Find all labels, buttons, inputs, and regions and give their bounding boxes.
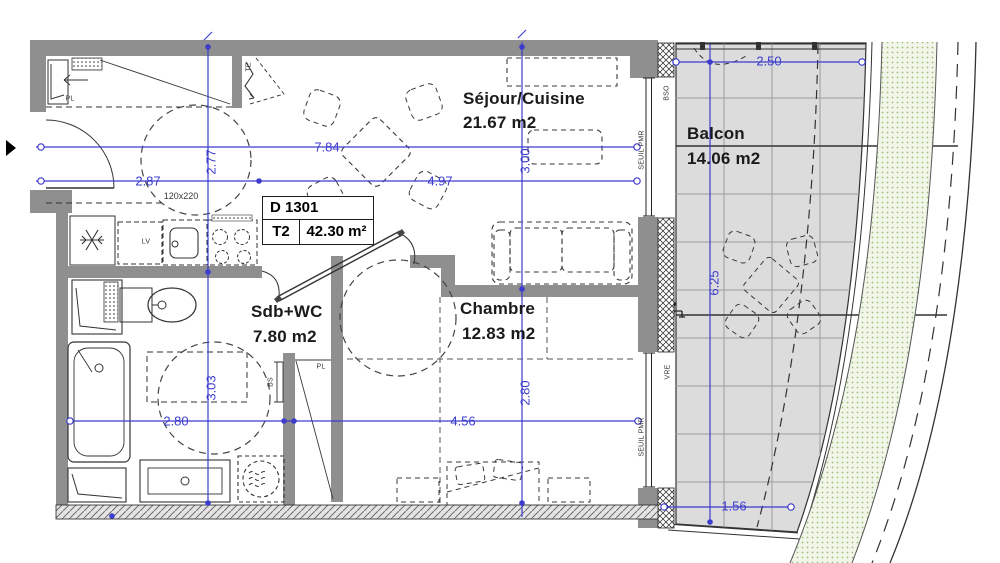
dim-sdb-width: 2.80 bbox=[163, 414, 188, 429]
basin-cabinet bbox=[120, 288, 152, 322]
sofa bbox=[492, 222, 632, 284]
dim-sdb-depth: 3.03 bbox=[204, 375, 219, 400]
dining-chair bbox=[301, 87, 342, 128]
seuil-pmr-label-top: SEUIL PMR bbox=[639, 130, 646, 169]
floor-plan: Séjour/Cuisine 21.67 m2 Balcon 14.06 m2 … bbox=[0, 0, 1000, 563]
unit-id: D 1301 bbox=[263, 197, 373, 220]
room-area-chambre: 12.83 m2 bbox=[462, 324, 535, 344]
bed bbox=[397, 459, 590, 505]
room-label-sdb: Sdb+WC bbox=[251, 302, 323, 322]
room-label-balcon: Balcon bbox=[687, 124, 745, 144]
seuil-pmr-label-bottom: SEUIL PMR bbox=[639, 417, 646, 456]
dim-sejour-total-width: 7.84 bbox=[314, 140, 339, 155]
sink-tap bbox=[172, 241, 178, 247]
wall-closet-right bbox=[331, 256, 343, 502]
closet-label-chambre: PL bbox=[317, 364, 326, 371]
entry-marker-triangle bbox=[6, 140, 16, 156]
dim-sejour-depth: 3.00 bbox=[518, 148, 533, 173]
room-area-sdb: 7.80 m2 bbox=[253, 327, 317, 347]
unit-type: T2 bbox=[263, 220, 300, 244]
nightstand bbox=[397, 478, 439, 502]
insulation-blocks bbox=[658, 43, 674, 528]
te-door-dashed bbox=[250, 58, 284, 104]
dim-balcon-end-width: 1.56 bbox=[721, 499, 746, 514]
dining-chair bbox=[403, 81, 444, 122]
shelf-tray bbox=[68, 468, 126, 502]
sink bbox=[170, 228, 198, 258]
dim-entry-depth: 2.77 bbox=[204, 149, 219, 174]
room-area-balcon: 14.06 m2 bbox=[687, 149, 760, 169]
closet-label-entry: PL bbox=[66, 96, 75, 103]
dining-table bbox=[339, 115, 413, 189]
wall-pier-mid bbox=[638, 217, 658, 352]
dim-entry-width: 2.87 bbox=[135, 174, 160, 189]
dim-sejour-width: 4.97 bbox=[427, 174, 452, 189]
unit-area: 42.30 m² bbox=[300, 220, 373, 244]
wall-sejour-chambre bbox=[441, 285, 646, 297]
bs-label: BS bbox=[268, 377, 275, 387]
closet-rail bbox=[72, 58, 102, 70]
plan-drawing bbox=[0, 0, 1000, 563]
dim-chambre-depth: 2.80 bbox=[518, 380, 533, 405]
vre-label: VRE bbox=[665, 365, 672, 380]
wall-top bbox=[30, 40, 648, 56]
room-area-sejour: 21.67 m2 bbox=[463, 113, 536, 133]
entry-door-size-label: 120x220 bbox=[164, 191, 199, 201]
dim-chambre-width: 4.56 bbox=[450, 414, 475, 429]
closet-diagonal bbox=[296, 361, 333, 499]
washing-machine bbox=[238, 456, 284, 502]
pillow bbox=[493, 459, 523, 481]
burners bbox=[213, 230, 251, 264]
entry-door-arc bbox=[46, 120, 114, 188]
kitchen-fixtures bbox=[70, 215, 257, 265]
pmr-circles bbox=[141, 105, 456, 454]
bso-label: BSO bbox=[664, 85, 671, 100]
wall-left-step bbox=[30, 190, 72, 213]
electrical-panel-label: TE bbox=[246, 62, 253, 71]
closet-arrow bbox=[64, 75, 88, 85]
window-chambre bbox=[646, 353, 652, 487]
dim-balcon-length: 6.25 bbox=[707, 270, 722, 295]
nightstand bbox=[548, 478, 590, 502]
hood-vent bbox=[212, 215, 252, 221]
wall-bottom-hatched bbox=[56, 505, 658, 519]
window-sejour bbox=[646, 78, 652, 216]
wall-kitchen-sdb bbox=[56, 266, 262, 278]
pillow bbox=[455, 463, 485, 485]
fridge-snowflake-icon bbox=[80, 230, 104, 250]
unit-info-box: D 1301 T2 42.30 m² bbox=[262, 196, 374, 245]
wall-left-lower bbox=[56, 213, 68, 519]
wall-corner-ne bbox=[630, 40, 658, 78]
closet-diagonal bbox=[100, 60, 230, 104]
bs-radiator bbox=[277, 362, 283, 402]
bathtub bbox=[68, 342, 130, 462]
dim-balcon-width: 2.50 bbox=[756, 54, 781, 69]
vanity-unit bbox=[140, 460, 230, 502]
room-label-sejour: Séjour/Cuisine bbox=[463, 89, 585, 109]
radiator bbox=[104, 282, 118, 322]
bathtub-tap bbox=[95, 364, 103, 372]
sideboard bbox=[507, 58, 617, 86]
wall-sdb-right bbox=[283, 353, 295, 505]
dishwasher bbox=[118, 222, 162, 264]
sdb-door-arc bbox=[262, 271, 279, 297]
wall-left-upper bbox=[30, 40, 46, 112]
dishwasher-label: LV bbox=[142, 239, 150, 246]
wall-chambre-step bbox=[410, 255, 455, 268]
room-label-chambre: Chambre bbox=[460, 299, 535, 319]
wall-closet-stub bbox=[232, 56, 242, 108]
